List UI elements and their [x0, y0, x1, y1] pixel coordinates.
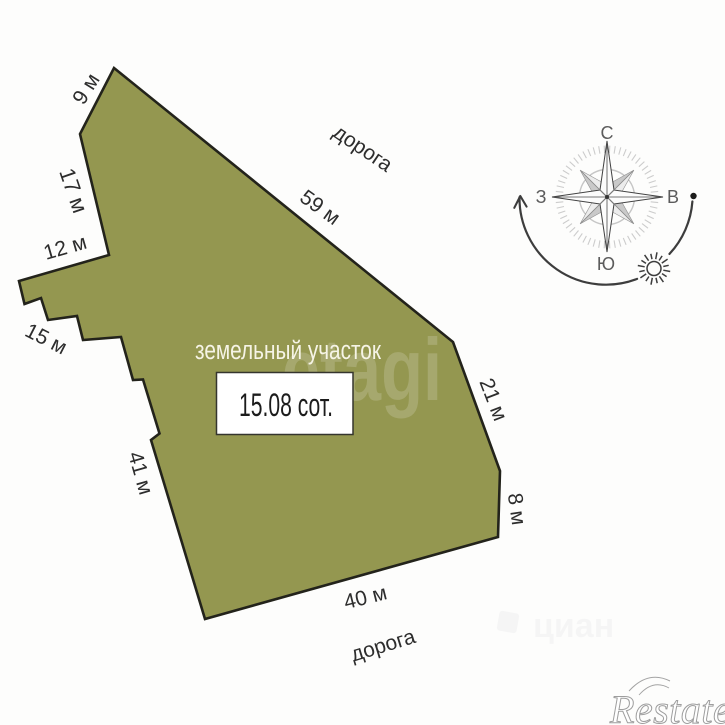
svg-text:17 м: 17 м	[54, 165, 93, 216]
svg-text:С: С	[601, 123, 614, 143]
svg-text:дорога: дорога	[329, 121, 397, 177]
svg-text:дорога: дорога	[348, 625, 418, 666]
svg-text:Ю: Ю	[597, 254, 615, 274]
svg-text:Restate: Restate	[609, 687, 725, 725]
svg-text:З: З	[536, 187, 547, 207]
svg-text:циан: циан	[533, 607, 614, 645]
svg-text:15 м: 15 м	[21, 319, 70, 359]
svg-text:12 м: 12 м	[41, 231, 89, 265]
svg-text:41 м: 41 м	[123, 449, 157, 497]
svg-text:8 м: 8 м	[503, 492, 530, 527]
svg-text:земельный участок: земельный участок	[195, 336, 382, 365]
svg-text:40 м: 40 м	[341, 581, 389, 614]
svg-text:15.08 сот.: 15.08 сот.	[239, 386, 333, 423]
svg-text:В: В	[667, 187, 679, 207]
